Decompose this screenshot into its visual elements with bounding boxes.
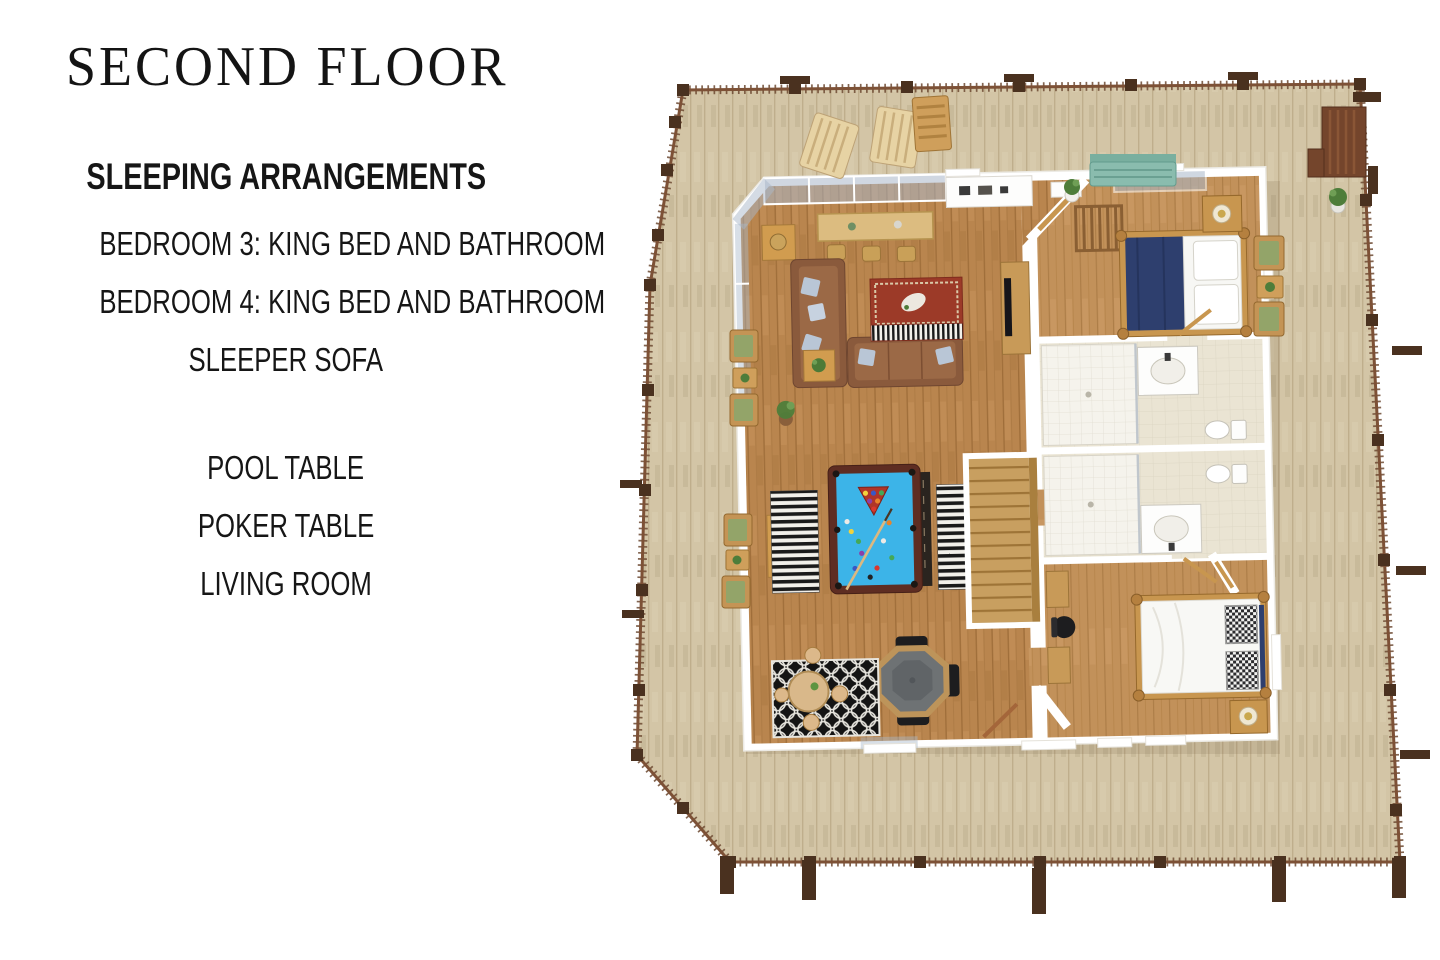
nightstand bbox=[1202, 195, 1242, 232]
plant-table bbox=[803, 350, 835, 382]
floor-plan bbox=[620, 50, 1440, 955]
stairs bbox=[963, 452, 1041, 630]
king-bed-4 bbox=[1131, 591, 1271, 701]
sleeping-item: BEDROOM 3: KING BED AND BATHROOM bbox=[28, 215, 544, 273]
deck-seating-right bbox=[1254, 236, 1284, 336]
side-table bbox=[762, 225, 796, 261]
info-panel: SECOND FLOOR SLEEPING ARRANGEMENTS BEDRO… bbox=[28, 26, 544, 613]
round-table bbox=[788, 671, 829, 712]
teal-bench bbox=[1090, 154, 1176, 186]
av-cabinet bbox=[946, 176, 1033, 208]
vanity-sink bbox=[1141, 504, 1202, 553]
page-title: SECOND FLOOR bbox=[66, 34, 544, 98]
feature-item: POKER TABLE bbox=[28, 497, 544, 555]
sleeper-sofa bbox=[847, 335, 963, 387]
floor-plan-render bbox=[620, 50, 1440, 955]
vanity-sink bbox=[1137, 346, 1198, 395]
sleeping-item: BEDROOM 4: KING BED AND BATHROOM bbox=[28, 273, 544, 331]
bedroom4-door-opening bbox=[1029, 647, 1049, 685]
pool-table bbox=[828, 464, 933, 594]
sleeping-item: SLEEPER SOFA bbox=[28, 331, 544, 389]
striped-rug-left bbox=[770, 490, 819, 593]
tv-console bbox=[1001, 262, 1031, 355]
sleeping-arrangements-list: BEDROOM 3: KING BED AND BATHROOM BEDROOM… bbox=[28, 215, 544, 389]
nightstand bbox=[1230, 700, 1268, 734]
house bbox=[732, 162, 1283, 756]
king-bed-3 bbox=[1116, 228, 1252, 340]
feature-item: LIVING ROOM bbox=[28, 555, 544, 613]
potted-plant bbox=[1064, 179, 1080, 202]
potted-plant bbox=[1329, 188, 1347, 213]
area-rug-red bbox=[870, 277, 963, 341]
feature-item: POOL TABLE bbox=[28, 439, 544, 497]
deck-chair bbox=[912, 95, 952, 151]
sleeping-arrangements-heading: SLEEPING ARRANGEMENTS bbox=[28, 158, 544, 195]
window-sill bbox=[1272, 635, 1282, 690]
features-list: POOL TABLE POKER TABLE LIVING ROOM bbox=[28, 439, 544, 613]
